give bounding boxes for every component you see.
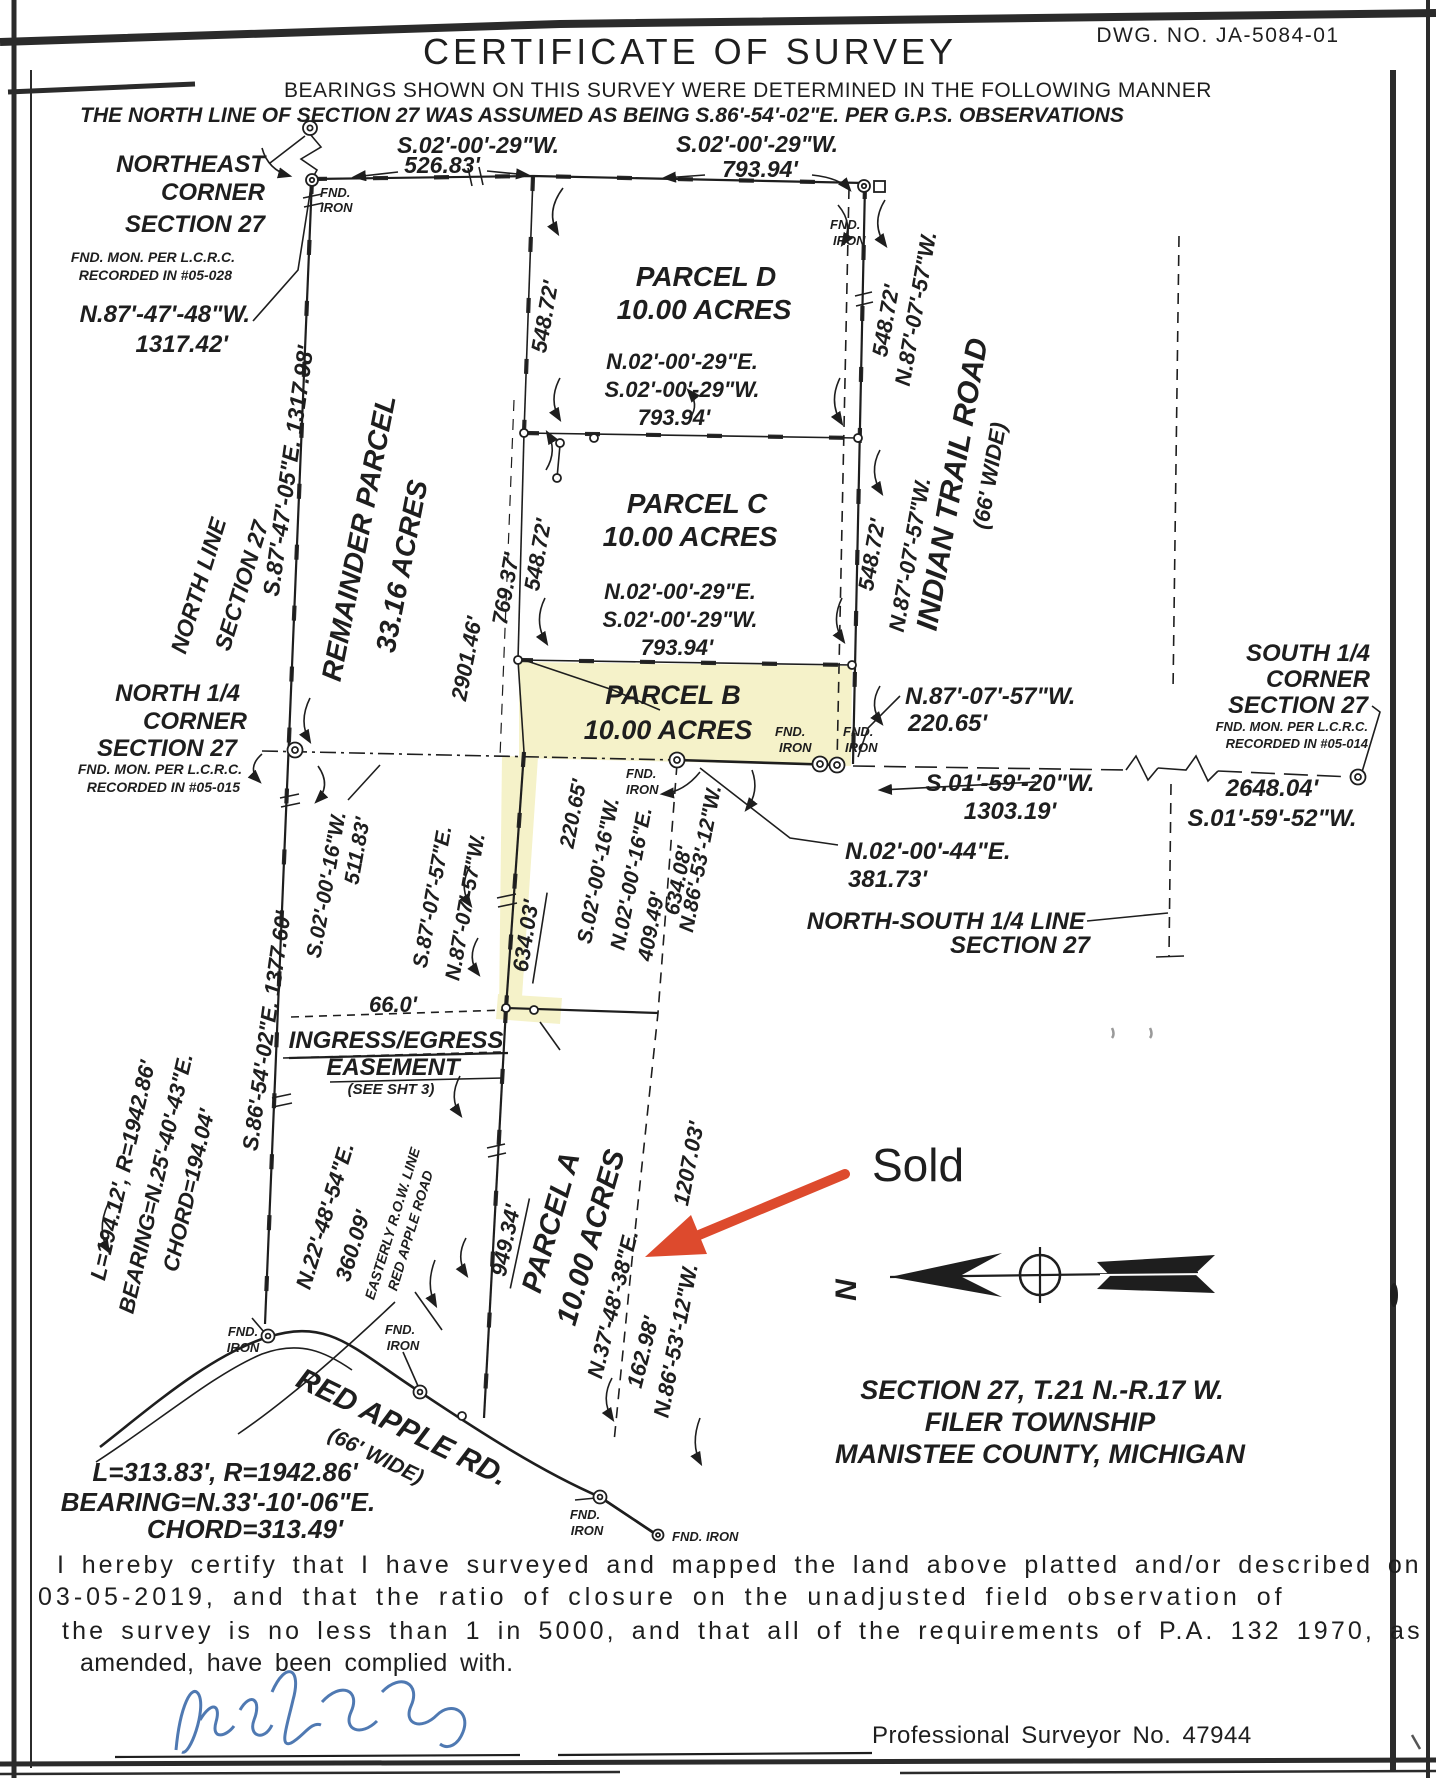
svg-text:(SEE SHT 3): (SEE SHT 3) [348, 1081, 435, 1098]
svg-text:RECORDED IN #05-028: RECORDED IN #05-028 [79, 267, 232, 283]
svg-text:S.01'-59'-52"W.: S.01'-59'-52"W. [1187, 805, 1356, 832]
svg-text:793.94': 793.94' [641, 635, 714, 660]
svg-text:RECORDED IN #05-015: RECORDED IN #05-015 [87, 779, 240, 795]
svg-text:FND. MON. PER L.C.R.C.: FND. MON. PER L.C.R.C. [71, 249, 235, 265]
certification-line-1: I hereby certify that I have surveyed an… [57, 1551, 1419, 1579]
page-title: CERTIFICATE OF SURVEY [423, 31, 957, 72]
svg-text:FND.: FND. [228, 1324, 258, 1339]
svg-text:S.01'-59'-20"W.: S.01'-59'-20"W. [925, 770, 1094, 797]
curve2-data: L=313.83', R=1942.86' [92, 1457, 358, 1487]
fnd-iron-monument [262, 1330, 275, 1343]
svg-text:N.02'-00'-29"E.: N.02'-00'-29"E. [606, 349, 758, 374]
signature [176, 1672, 465, 1753]
s14-corner-label: SOUTH 1/4 [1246, 640, 1370, 667]
bearing-note-1: BEARINGS SHOWN ON THIS SURVEY WERE DETER… [284, 79, 1212, 102]
parcel-dc-divide [524, 433, 858, 438]
svg-text:FND.: FND. [626, 766, 656, 781]
svg-text:FND. MON. PER L.C.R.C.: FND. MON. PER L.C.R.C. [78, 761, 242, 777]
svg-text:IRON: IRON [227, 1340, 260, 1355]
svg-text:548.72': 548.72' [526, 278, 563, 355]
ns-quarter-line [1173, 236, 1179, 692]
parcel-d-name: PARCEL D [636, 261, 777, 292]
svg-text:FND.: FND. [385, 1322, 415, 1337]
certificate-of-survey-page: DWG. NO. JA-5084-01 CERTIFICATE OF SURVE… [0, 0, 1436, 1778]
ns-quarter-label: NORTH-SOUTH 1/4 LINE [807, 908, 1086, 935]
svg-text:IRON: IRON [845, 740, 878, 755]
svg-text:IRON: IRON [571, 1523, 604, 1538]
svg-text:10.00 ACRES: 10.00 ACRES [603, 521, 778, 552]
svg-text:CORNER: CORNER [143, 708, 248, 735]
svg-text:CORNER: CORNER [1266, 666, 1371, 693]
svg-text:FND.: FND. [570, 1507, 600, 1522]
svg-text:SECTION 27: SECTION 27 [125, 211, 267, 238]
easement-label: INGRESS/EGRESS [289, 1027, 504, 1054]
svg-text:FILER TOWNSHIP: FILER TOWNSHIP [925, 1407, 1156, 1437]
sold-label: Sold [872, 1139, 964, 1191]
svg-text:SECTION 27: SECTION 27 [1228, 692, 1370, 719]
svg-text:IRON: IRON [387, 1338, 420, 1353]
svg-text:FND.: FND. [843, 724, 873, 739]
svg-text:N.02'-00'-29"E.: N.02'-00'-29"E. [604, 579, 756, 604]
svg-text:2901.46': 2901.46' [446, 614, 487, 704]
svg-text:10.00 ACRES: 10.00 ACRES [584, 715, 753, 745]
south-quarter-monument [1351, 770, 1366, 785]
survey-lines [96, 134, 1352, 1537]
fnd-iron-monument [653, 1530, 664, 1541]
bearing-note-2: THE NORTH LINE OF SECTION 27 WAS ASSUMED… [80, 104, 1124, 127]
north-arrow: N [830, 1247, 1215, 1303]
svg-text:526.83': 526.83' [404, 152, 481, 178]
svg-text:BEARING=N.33'-10'-06"E.: BEARING=N.33'-10'-06"E. [61, 1487, 375, 1517]
fnd-iron-label: FND. [320, 185, 350, 200]
svg-text:S.02'-00'-29"W.: S.02'-00'-29"W. [605, 377, 760, 402]
svg-text:1317.42': 1317.42' [136, 331, 230, 358]
svg-text:SECTION 27: SECTION 27 [950, 932, 1092, 959]
svg-text:548.72': 548.72' [519, 516, 556, 593]
certification-block: I hereby certify that I have surveyed an… [38, 1551, 1420, 1677]
svg-text:10.00 ACRES: 10.00 ACRES [617, 294, 792, 325]
svg-text:EASEMENT: EASEMENT [326, 1054, 462, 1081]
fnd-iron-monument [670, 753, 685, 768]
svg-text:S.87'-47'-05"E. 1317.98': S.87'-47'-05"E. 1317.98' [258, 343, 319, 598]
svg-text:S.02'-00'-29"W.: S.02'-00'-29"W. [676, 131, 838, 157]
svg-text:FND.: FND. [830, 217, 860, 232]
svg-text:66.0': 66.0' [369, 992, 418, 1017]
fnd-iron-monument [594, 1491, 607, 1504]
svg-text:CORNER: CORNER [161, 179, 266, 206]
survey-drawing: DWG. NO. JA-5084-01 CERTIFICATE OF SURVE… [0, 0, 1436, 1778]
svg-text:MANISTEE COUNTY, MICHIGAN: MANISTEE COUNTY, MICHIGAN [835, 1439, 1246, 1469]
svg-text:IRON: IRON [833, 233, 866, 248]
surveyor-number: Professional Surveyor No. 47944 [872, 1722, 1252, 1749]
svg-text:SECTION 27: SECTION 27 [97, 735, 239, 762]
svg-text:IRON: IRON [320, 200, 353, 215]
fnd-iron-monument [306, 174, 318, 186]
svg-text:IRON: IRON [626, 782, 659, 797]
svg-text:2648.04': 2648.04' [1225, 775, 1320, 802]
svg-text:1303.19': 1303.19' [964, 798, 1058, 825]
svg-text:949.34': 949.34' [486, 1202, 526, 1279]
svg-text:S.02'-00'-16"W.: S.02'-00'-16"W. [302, 810, 350, 960]
svg-text:S.86'-54'-02"E. 1377.60': S.86'-54'-02"E. 1377.60' [237, 909, 295, 1152]
certification-line-3: the survey is no less than 1 in 5000, an… [62, 1617, 1420, 1645]
certification-line-2: 03-05-2019, and that the ratio of closur… [38, 1583, 1282, 1611]
parcel-c-west-line [518, 433, 524, 660]
ne-corner-label: NORTHEAST [116, 151, 267, 178]
svg-text:IRON: IRON [779, 740, 812, 755]
dwg-number: DWG. NO. JA-5084-01 [1096, 24, 1339, 47]
signature-block: Professional Surveyor No. 47944 [115, 1672, 1252, 1757]
svg-text:220.65': 220.65' [556, 777, 592, 851]
n14-corner-label: NORTH 1/4 [115, 680, 240, 707]
svg-text:793.94': 793.94' [638, 405, 711, 430]
svg-text:FND. IRON: FND. IRON [672, 1529, 739, 1544]
fnd-iron-monument [414, 1386, 427, 1399]
sold-arrow-head [645, 1215, 707, 1257]
north-quarter-monument [288, 743, 303, 758]
parcel-b-name: PARCEL B [605, 680, 741, 710]
parcel-c-name: PARCEL C [627, 488, 768, 519]
ne-tie-bearing: N.87'-47'-48"W. [80, 301, 250, 328]
sold-arrow-shaft [699, 1174, 845, 1235]
svg-text:FND. MON. PER L.C.R.C.: FND. MON. PER L.C.R.C. [1216, 719, 1368, 734]
svg-text:381.73': 381.73' [848, 866, 928, 893]
svg-text:FND.: FND. [775, 724, 805, 739]
location-line-1: SECTION 27, T.21 N.-R.17 W. [860, 1375, 1224, 1405]
ne-tie-line [301, 134, 321, 179]
svg-text:N.02'-00'-44"E.: N.02'-00'-44"E. [845, 838, 1011, 865]
svg-text:1207.03': 1207.03' [668, 1119, 709, 1208]
svg-text:CHORD=313.49': CHORD=313.49' [147, 1514, 344, 1544]
certification-line-4: amended, have been complied with. [80, 1649, 513, 1677]
svg-text:220.65': 220.65' [907, 710, 988, 737]
svg-text:793.94': 793.94' [722, 156, 799, 182]
north-arrow-label: N [830, 1278, 863, 1301]
map-labels: DWG. NO. JA-5084-01 CERTIFICATE OF SURVE… [61, 24, 1371, 1544]
svg-text:RECORDED IN #05-014: RECORDED IN #05-014 [1226, 736, 1369, 751]
fnd-iron-monument [858, 180, 885, 192]
svg-text:N.87'-07'-57"W.: N.87'-07'-57"W. [905, 683, 1075, 710]
svg-text:S.02'-00'-29"W.: S.02'-00'-29"W. [603, 607, 758, 632]
